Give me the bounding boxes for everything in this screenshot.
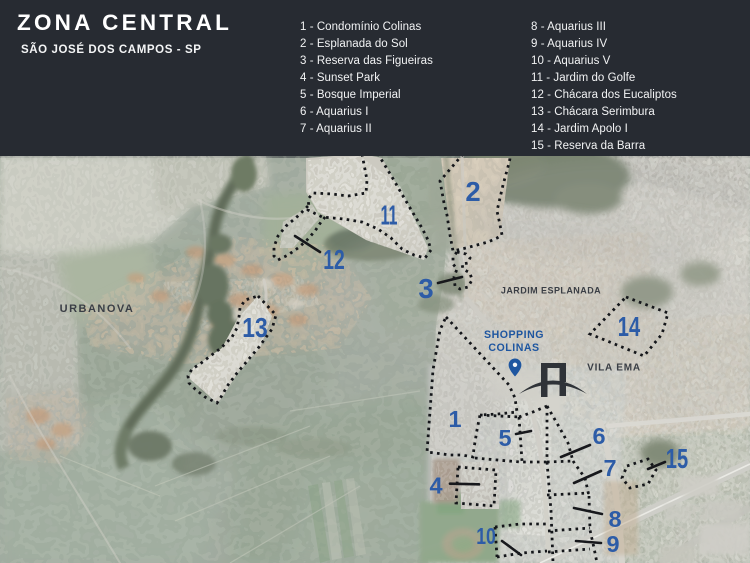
svg-text:2: 2 [465,176,480,207]
svg-text:3: 3 [418,273,433,304]
svg-text:VILA EMA: VILA EMA [587,363,641,374]
svg-text:SHOPPING: SHOPPING [484,329,544,341]
svg-text:9: 9 [606,531,619,557]
svg-text:14: 14 [618,311,641,342]
svg-text:6: 6 [592,423,605,449]
svg-text:10: 10 [476,523,496,549]
svg-text:5: 5 [498,425,511,451]
svg-text:8: 8 [608,506,621,532]
svg-text:URBANOVA: URBANOVA [60,303,135,315]
svg-text:15: 15 [666,443,688,474]
svg-text:1: 1 [448,406,461,432]
svg-text:7: 7 [603,455,616,481]
svg-text:11: 11 [381,200,398,231]
svg-text:13: 13 [242,312,267,343]
svg-text:COLINAS: COLINAS [488,342,539,354]
svg-text:JARDIM ESPLANADA: JARDIM ESPLANADA [501,286,601,296]
svg-text:12: 12 [323,244,345,275]
svg-text:4: 4 [429,473,442,499]
